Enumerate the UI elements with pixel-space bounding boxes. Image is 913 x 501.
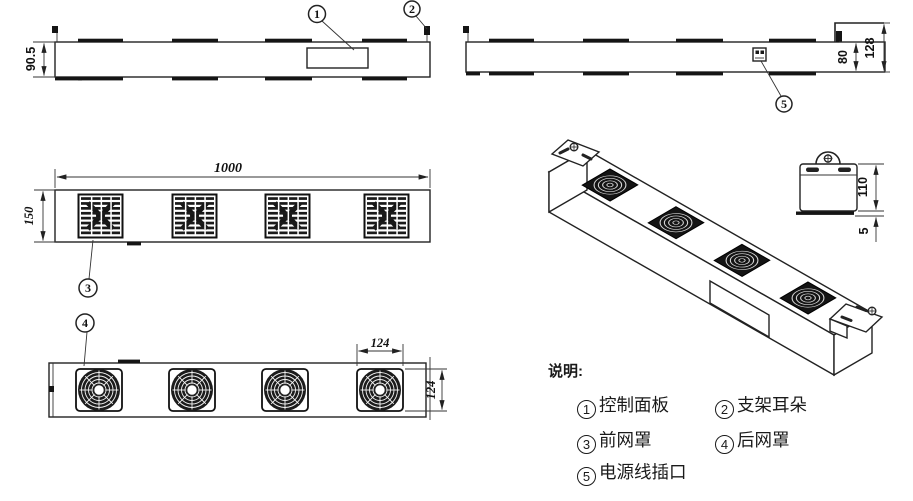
svg-text:2: 2: [409, 2, 415, 16]
callout-4: 4: [76, 314, 94, 366]
legend-item-5-number: 5: [577, 467, 596, 486]
bottom-flange: [796, 212, 854, 215]
callout-3: 3: [79, 240, 97, 297]
rear-fan-3: [262, 369, 308, 411]
front-view: 1000 150 3: [22, 161, 430, 297]
legend-item-2-number: 2: [715, 400, 734, 419]
legend-item-2: 2支架耳朵: [715, 392, 807, 419]
svg-text:124: 124: [371, 336, 390, 350]
legend-item-2-label: 支架耳朵: [737, 395, 807, 415]
svg-text:1000: 1000: [214, 161, 242, 176]
legend-item-1-label: 控制面板: [599, 395, 669, 415]
svg-text:128: 128: [863, 38, 877, 59]
legend-item-4: 4后网罩: [715, 427, 790, 454]
svg-text:150: 150: [22, 206, 36, 226]
bracket-ear-tab-left: [52, 26, 58, 42]
svg-text:5: 5: [781, 97, 787, 111]
rear-view: 124 124 4: [49, 314, 447, 420]
slot-left: [806, 168, 819, 173]
rear-fan-4: [357, 369, 403, 411]
front-grille-2: [173, 195, 217, 238]
technical-drawing-page: 90.5 1 2: [0, 0, 913, 501]
bracket-ear-tab-left: [463, 26, 469, 42]
hanging-bracket: [816, 152, 840, 164]
legend: 说明: 1控制面板 2支架耳朵 3前网罩 4后网罩 5电源线插口: [548, 360, 878, 495]
svg-text:124: 124: [424, 381, 438, 400]
legend-item-1-number: 1: [577, 400, 596, 419]
end-cap-detail-view: 110 5: [796, 152, 884, 242]
legend-title: 说明:: [548, 360, 583, 381]
bar-body-outline: [55, 42, 430, 77]
legend-item-3: 3前网罩: [577, 427, 652, 454]
control-panel-outline: [307, 48, 368, 68]
legend-item-3-label: 前网罩: [599, 430, 652, 450]
svg-text:80: 80: [836, 50, 850, 64]
legend-item-4-number: 4: [715, 435, 734, 454]
dim-overall-length: 1000: [55, 161, 430, 188]
svg-text:4: 4: [82, 316, 88, 330]
svg-text:3: 3: [85, 281, 91, 295]
svg-text:90.5: 90.5: [24, 47, 38, 71]
top-notch: [118, 360, 140, 363]
callout-2: 2: [404, 1, 427, 29]
bar-body-outline: [466, 42, 885, 72]
dim-fan-width: 124: [357, 336, 403, 366]
legend-item-5: 5电源线插口: [577, 459, 687, 486]
svg-text:1: 1: [314, 7, 320, 21]
legend-item-3-number: 3: [577, 435, 596, 454]
power-socket: [753, 48, 766, 61]
dim-end-cap-height: 110: [856, 164, 884, 211]
bottom-notch: [127, 242, 141, 245]
side-view-front: 90.5 1 2: [24, 1, 430, 80]
rear-fan-1: [76, 369, 122, 411]
front-grille-1: [79, 195, 123, 238]
slot-right: [838, 168, 851, 173]
front-grille-4: [365, 195, 409, 238]
side-view-rear: 5 80 128: [463, 23, 890, 112]
rear-fan-2: [169, 369, 215, 411]
legend-item-4-label: 后网罩: [737, 430, 790, 450]
dim-body-width: 150: [22, 190, 56, 242]
legend-item-5-label: 电源线插口: [599, 462, 687, 482]
front-grille-3: [266, 195, 310, 238]
dim-front-height: 90.5: [24, 42, 56, 77]
legend-item-1: 1控制面板: [577, 392, 669, 419]
svg-text:110: 110: [856, 177, 870, 197]
dim-flange-thickness: 5: [855, 216, 884, 242]
left-tick: [49, 386, 54, 392]
svg-text:5: 5: [857, 227, 871, 234]
